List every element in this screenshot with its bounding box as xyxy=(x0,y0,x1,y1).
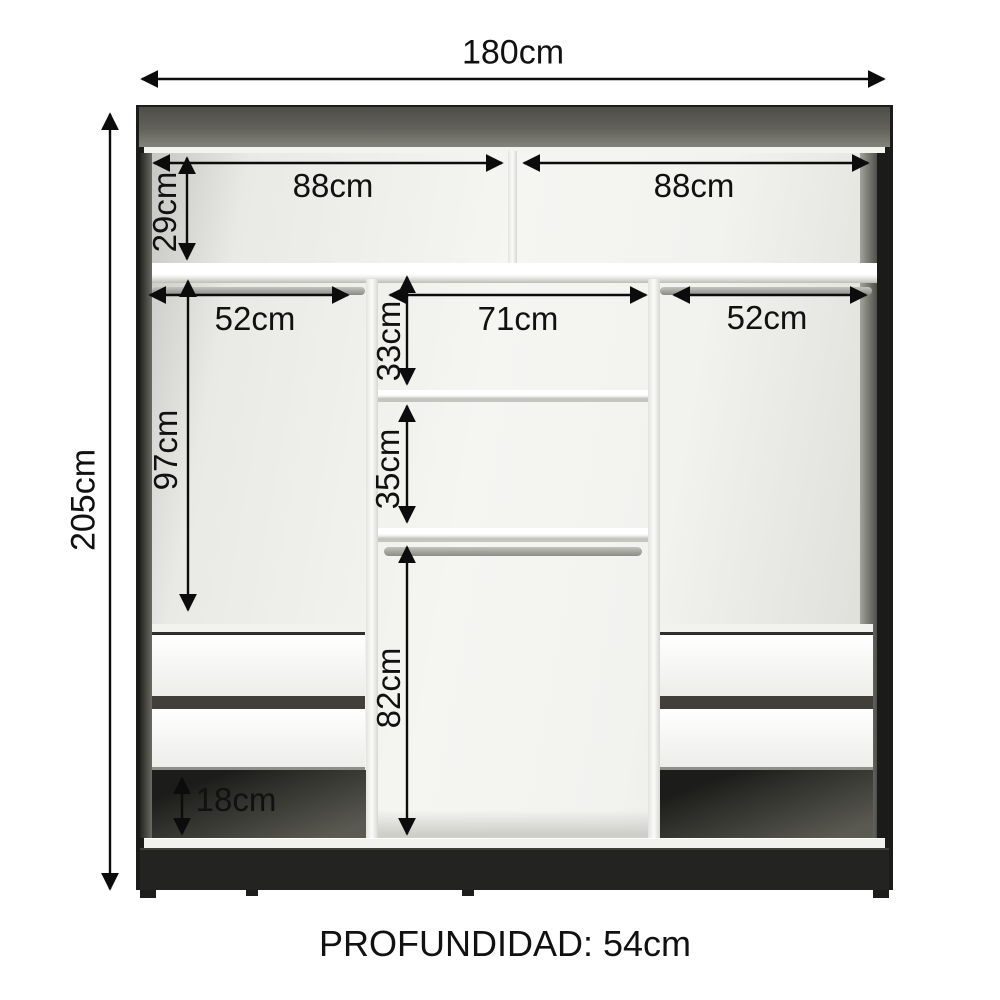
right-under-drawer-recess xyxy=(660,770,873,838)
wardrobe-top-panel xyxy=(139,107,890,147)
dim-label-top-right-width: 88cm xyxy=(654,167,735,205)
center-floor-shading xyxy=(378,810,648,838)
center-shelf-upper xyxy=(378,390,648,402)
left-hanging-rod xyxy=(152,287,365,295)
depth-caption: PROFUNDIDAD: 54cm xyxy=(319,923,691,965)
right-drawer-1 xyxy=(660,635,873,696)
right-drawer-top-surface xyxy=(660,624,873,632)
dim-label-left-hanging-height: 97cm xyxy=(147,410,185,491)
dim-label-top-section-height: 29cm xyxy=(146,172,184,253)
top-center-divider xyxy=(508,151,517,265)
dim-label-total-height: 205cm xyxy=(65,449,104,551)
upper-long-shelf xyxy=(152,263,877,283)
dim-label-plinth-clearance: 18cm xyxy=(196,781,277,819)
left-drawer-gap xyxy=(152,696,365,709)
right-hanging-rod xyxy=(660,287,872,295)
center-right-divider xyxy=(648,279,660,838)
dim-label-center-lower-height: 82cm xyxy=(370,648,408,729)
left-drawer-1 xyxy=(152,635,365,696)
dim-label-center-width: 71cm xyxy=(478,300,559,338)
right-drawer-gap xyxy=(660,696,873,709)
right-drawer-2 xyxy=(660,709,873,767)
right-drawer-unit xyxy=(660,624,873,770)
center-hanging-rod xyxy=(384,547,642,556)
dim-label-top-left-width: 88cm xyxy=(293,167,374,205)
left-drawer-2 xyxy=(152,709,365,767)
bottom-rail xyxy=(144,838,885,848)
dim-label-center-upper-height: 33cm xyxy=(370,301,408,382)
left-drawer-unit xyxy=(152,624,365,770)
plinth xyxy=(140,848,889,890)
center-shelf-lower xyxy=(378,528,648,542)
wardrobe-left-side-panel xyxy=(140,153,152,838)
dim-label-center-middle-height: 35cm xyxy=(369,429,407,510)
dim-label-left-rod-width: 52cm xyxy=(215,300,296,338)
wardrobe-dimension-diagram: 180cm 205cm 88cm 88cm 29cm 52cm 71cm 52c… xyxy=(0,0,1000,1000)
foot-center-left xyxy=(246,890,258,896)
dim-label-right-rod-width: 52cm xyxy=(727,299,808,337)
foot-center-right xyxy=(462,890,474,896)
dim-label-total-width: 180cm xyxy=(462,34,564,73)
foot-right xyxy=(873,890,889,898)
foot-left xyxy=(140,890,156,898)
left-drawer-top-surface xyxy=(152,624,365,632)
